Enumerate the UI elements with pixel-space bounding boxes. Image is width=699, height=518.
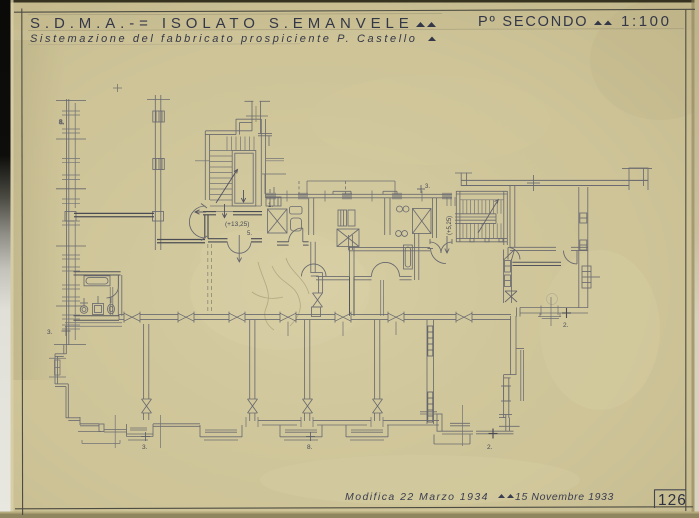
svg-text:2.: 2.: [563, 322, 569, 329]
svg-text:1:100: 1:100: [621, 13, 672, 30]
svg-text:5.: 5.: [247, 231, 252, 237]
svg-text:8.: 8.: [307, 444, 313, 451]
svg-text:S.D.M.A.-= ISOLATO S.EMANVELE: S.D.M.A.-= ISOLATO S.EMANVELE: [30, 15, 414, 32]
svg-text:(+5,25): (+5,25): [447, 216, 453, 235]
svg-text:15 Novembre 1933: 15 Novembre 1933: [515, 491, 614, 503]
svg-text:3.: 3.: [142, 444, 148, 451]
svg-text:3.: 3.: [47, 329, 53, 336]
svg-text:Modifica 22 Marzo 1934: Modifica 22 Marzo 1934: [345, 491, 489, 503]
svg-text:2.: 2.: [487, 444, 493, 451]
svg-text:3.: 3.: [425, 184, 430, 190]
svg-text:Sistemazione del fabbricato pr: Sistemazione del fabbricato prospiciente…: [30, 33, 418, 45]
svg-text:126: 126: [658, 492, 687, 509]
svg-text:Pº SECONDO: Pº SECONDO: [478, 14, 588, 30]
svg-text:1.: 1.: [268, 203, 273, 209]
svg-text:8.: 8.: [59, 120, 64, 126]
svg-text:(+13,25): (+13,25): [225, 221, 249, 228]
